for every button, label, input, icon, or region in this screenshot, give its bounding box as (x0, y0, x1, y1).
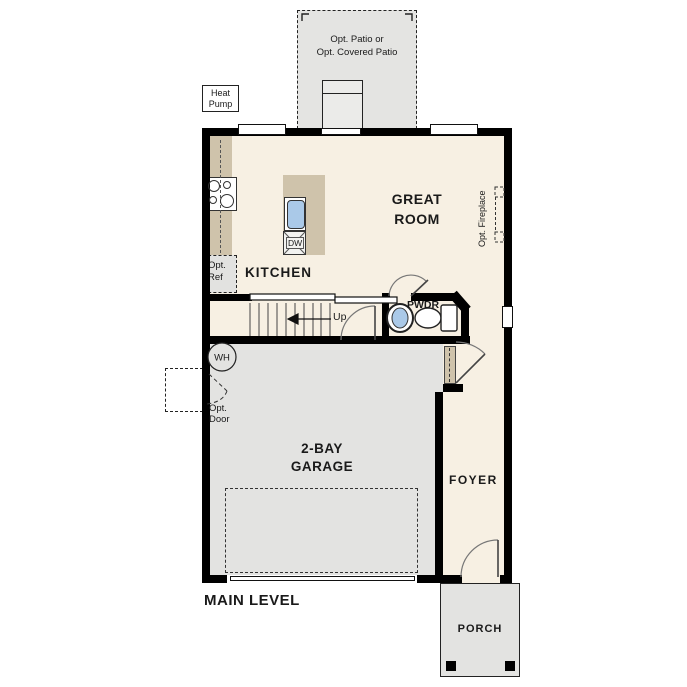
up-label: Up (333, 311, 346, 323)
garage-label: 2-BAY GARAGE (272, 440, 372, 476)
opt-door-line2: Door (209, 414, 230, 425)
dw-label: DW (286, 237, 304, 249)
opt-door-label: Opt. Door (209, 403, 230, 425)
great-room-line1: GREAT (374, 189, 460, 209)
stairs-railing (250, 294, 397, 303)
patio-corner-brackets (302, 14, 412, 21)
plan-linework: WH (0, 0, 687, 687)
opt-fireplace-label: Opt. Fireplace (477, 183, 487, 247)
great-room-label: GREAT ROOM (374, 189, 460, 229)
garage-line2: GARAGE (272, 458, 372, 476)
opt-door-swing (207, 374, 227, 404)
cooktop-burners (209, 181, 234, 208)
opt-fireplace-outline (495, 187, 504, 242)
porch-label: PORCH (441, 623, 519, 635)
water-heater: WH (208, 343, 236, 371)
garage-line1: 2-BAY (272, 440, 372, 458)
kitchen-label: KITCHEN (245, 265, 312, 280)
foyer-label: FOYER (449, 473, 498, 487)
stairs-up-arrow (288, 314, 331, 324)
great-room-line2: ROOM (374, 209, 460, 229)
plan-title: MAIN LEVEL (204, 592, 300, 609)
opt-door-line1: Opt. (209, 403, 230, 414)
pwdr-label: PWDR (400, 299, 446, 311)
water-heater-label: WH (214, 353, 230, 364)
floorplan: Opt. Patio or Opt. Covered Patio Heat Pu… (0, 0, 687, 687)
